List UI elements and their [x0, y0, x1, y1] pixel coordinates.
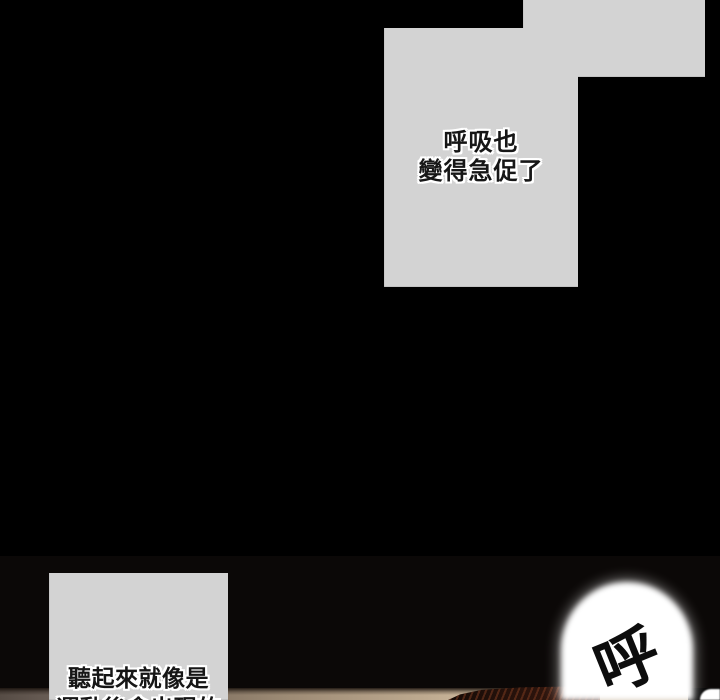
caption-panel-bottom-left: 聽起來就像是 運動後會出現的 — [49, 573, 228, 700]
speech-line: 運動後會出現的 — [49, 693, 228, 700]
speech-text-bottom: 聽起來就像是 運動後會出現的 — [49, 573, 228, 700]
speech-line: 呼吸也 — [384, 128, 578, 157]
speech-line: 聽起來就像是 — [49, 663, 228, 693]
caption-panel-main: 呼吸也 變得急促了 — [384, 28, 578, 287]
speech-line: 變得急促了 — [384, 157, 578, 186]
comic-page: 呼吸也 變得急促了 聽起來就像是 運動後會出現的 呼 — [0, 0, 720, 700]
corner-bubble-notch — [700, 689, 720, 700]
speech-text-main: 呼吸也 變得急促了 — [384, 28, 578, 186]
